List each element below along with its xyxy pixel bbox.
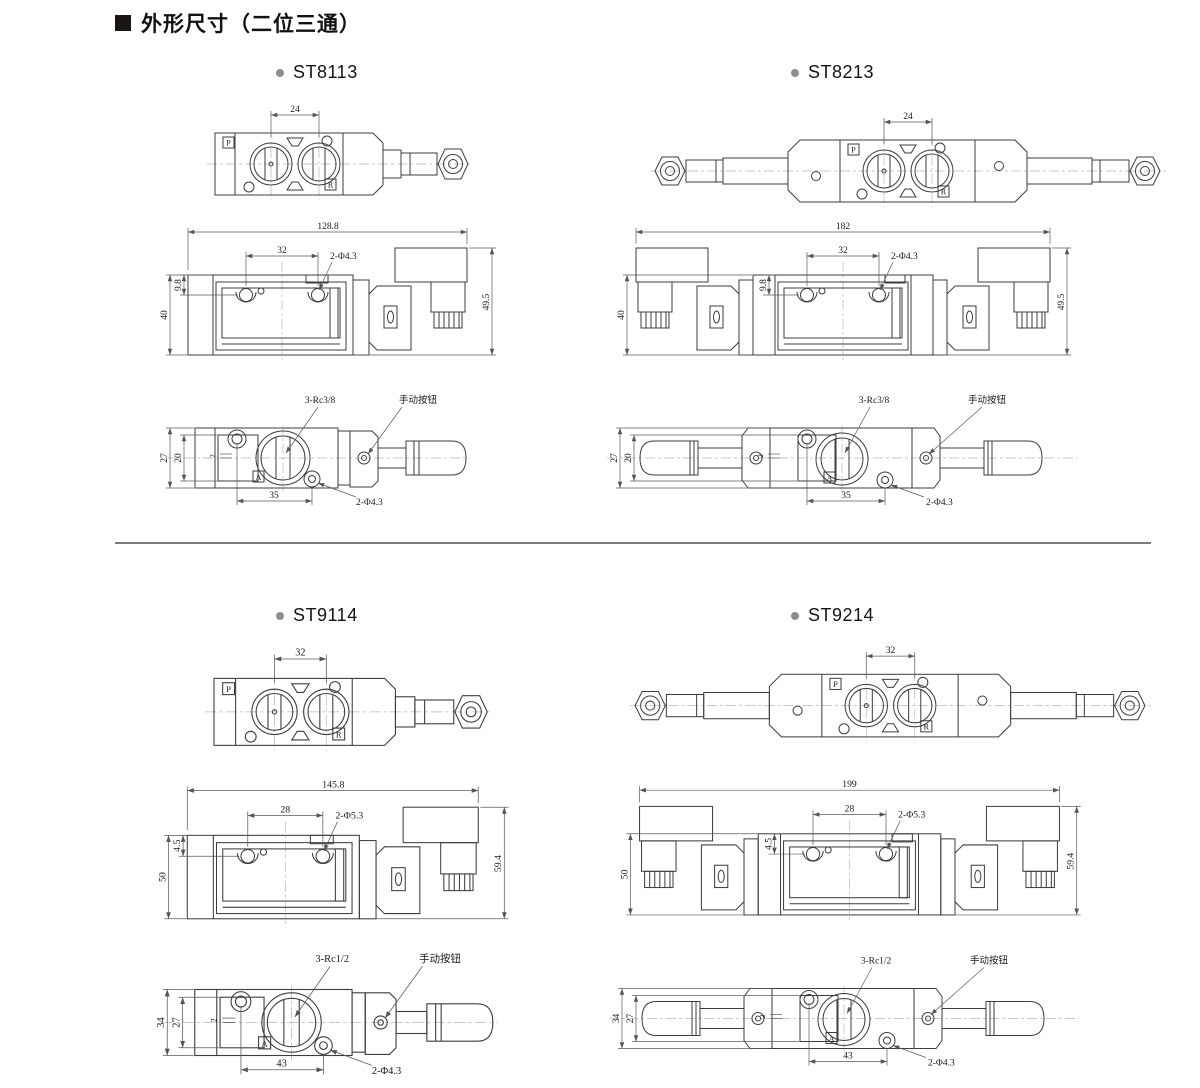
dim-height: 34: [612, 1014, 622, 1024]
dim-offset: 9.8: [174, 279, 184, 291]
dim-overall-width: 128.8: [317, 222, 339, 232]
model-name: ST8113: [293, 62, 358, 83]
hole-callout: 2-Φ5.3: [898, 810, 925, 821]
hole-callout: 2-Φ4.3: [891, 252, 918, 262]
bullet-icon: [791, 612, 799, 620]
dim-inner-height: 20: [174, 453, 184, 463]
port-p-label: P: [226, 139, 231, 148]
port-p-label: P: [833, 680, 838, 689]
st8213-top-view: 24 P R: [648, 110, 1168, 210]
dim-inner-height: 20: [624, 453, 634, 463]
top-view-drawing: [205, 655, 490, 751]
dim-overall-width: 182: [836, 222, 851, 232]
thread-callout: 3-Rc1/2: [861, 957, 892, 967]
dim-hole-spacing: 32: [277, 246, 287, 256]
st8113-top-view: 24 P R: [205, 103, 475, 203]
port-r-label: R: [328, 181, 334, 190]
dim-inner-height: 27: [171, 1017, 182, 1027]
top-view-drawing: [207, 111, 471, 200]
bullet-icon: [791, 69, 799, 77]
dim-body-height: 40: [617, 310, 627, 320]
st9214-top-view: 32 P R: [628, 644, 1153, 745]
port-a-label: A: [827, 474, 833, 483]
dim-body-height: 40: [160, 310, 170, 320]
dim-offset: 9.8: [759, 279, 769, 291]
bullet-icon: [276, 612, 284, 620]
model-label-st8113: ST8113: [276, 62, 358, 83]
dim-port-spacing: 32: [886, 645, 896, 656]
dim-port-spacing: 32: [295, 648, 305, 659]
port-p-label: P: [226, 684, 231, 694]
model-label-st9114: ST9114: [276, 605, 358, 626]
model-label-st9214: ST9214: [791, 605, 874, 626]
model-name: ST8213: [808, 62, 874, 83]
manual-button-callout: 手动按钮: [419, 952, 461, 965]
st8213-side-view: 3-Rc3/8 手动按钮 27 20 2 35 2-Φ4.3 A: [602, 393, 1082, 513]
model-name: ST9214: [808, 605, 874, 626]
dim-hole-spacing: 28: [280, 804, 290, 815]
hole-callout: 2-Φ4.3: [372, 1066, 401, 1077]
port-p-label: P: [851, 146, 856, 155]
dim-total-height: 59.4: [1066, 853, 1077, 870]
dim-offset: 2: [210, 1018, 219, 1022]
st9214-front-view: 199 28 2-Φ5.3 4.5 50 59.4: [606, 778, 1093, 920]
dim-total-height: 49.5: [482, 293, 492, 310]
dim-hole-spacing: 28: [845, 803, 855, 814]
dim-hole-spacing: 43: [276, 1059, 286, 1070]
hole-callout: 2-Φ4.3: [926, 498, 953, 508]
hole-callout: 2-Φ4.3: [928, 1059, 955, 1069]
hole-callout: 2-Φ4.3: [356, 498, 383, 508]
port-a-label: A: [256, 473, 262, 482]
thread-callout: 3-Rc3/8: [305, 396, 336, 406]
dim-overall-width: 145.8: [322, 779, 344, 790]
page-title: 外形尺寸（二位三通）: [115, 8, 361, 38]
st8113-front-view: 128.8 32 2-Φ4.3 9.8 40 49.5: [158, 220, 508, 360]
dim-hole-spacing: 32: [838, 246, 848, 256]
front-view-drawing: [164, 786, 508, 924]
dim-offset: 2: [208, 454, 217, 458]
front-view-drawing: [166, 228, 496, 360]
dim-offset: 4.5: [172, 840, 183, 852]
hole-callout: 2-Φ5.3: [335, 811, 363, 822]
section-divider: [115, 542, 1151, 544]
page-title-text: 外形尺寸（二位三通）: [141, 8, 361, 38]
dim-hole-spacing: 43: [843, 1052, 853, 1062]
dim-offset: 4.5: [763, 838, 774, 850]
model-name: ST9114: [293, 605, 358, 626]
dim-height: 27: [610, 453, 620, 463]
dim-hole-spacing: 35: [269, 491, 279, 501]
dim-overall-width: 199: [842, 779, 857, 790]
top-view-drawing: [630, 652, 1151, 742]
model-label-st8213: ST8213: [791, 62, 874, 83]
st8113-side-view: 3-Rc3/8 手动按钮 27 20 2 35 2-Φ4.3 A: [160, 393, 475, 513]
thread-callout: 3-Rc3/8: [859, 396, 890, 406]
dim-inner-height: 27: [626, 1014, 636, 1024]
dim-total-height: 59.4: [493, 855, 504, 872]
st9114-side-view: 3-Rc1/2 手动按钮 34 27 2 43 2-Φ4.3 A: [156, 951, 503, 1083]
port-r-label: R: [336, 729, 342, 739]
dim-offset: 2: [758, 1014, 767, 1018]
dim-height: 34: [156, 1017, 167, 1028]
thread-callout: 3-Rc1/2: [315, 954, 349, 965]
manual-button-callout: 手动按钮: [968, 394, 1007, 406]
manual-button-callout: 手动按钮: [970, 955, 1009, 967]
dimension-drawing-page: 外形尺寸（二位三通） ST8113 ST8213 ST9114 ST9214 2…: [0, 0, 1200, 1088]
dim-port-spacing: 24: [903, 112, 913, 122]
bullet-icon: [276, 69, 284, 77]
st9214-side-view: 3-Rc1/2 手动按钮 34 27 2 43 2-Φ4.3 A: [604, 951, 1084, 1076]
st9114-top-view: 32 P R: [203, 646, 495, 754]
dim-hole-spacing: 35: [841, 491, 851, 501]
st9114-front-view: 145.8 28 2-Φ5.3 4.5 50 59.4: [156, 778, 521, 924]
port-r-label: R: [941, 188, 947, 197]
dim-body-height: 50: [619, 869, 630, 879]
dim-body-height: 50: [157, 872, 168, 882]
top-view-drawing: [650, 118, 1166, 207]
st8213-front-view: 182 32 2-Φ4.3 9.8 40 49.5: [603, 220, 1083, 360]
dim-total-height: 49.5: [1057, 293, 1067, 310]
hole-callout: 2-Φ4.3: [330, 252, 357, 262]
port-a-label: A: [829, 1034, 835, 1043]
dim-port-spacing: 24: [290, 105, 300, 115]
manual-button-callout: 手动按钮: [399, 394, 438, 406]
port-a-label: A: [261, 1038, 268, 1048]
title-square-icon: [115, 15, 131, 31]
dim-offset: 2: [756, 454, 765, 458]
port-r-label: R: [924, 722, 930, 731]
dim-height: 27: [160, 453, 170, 463]
